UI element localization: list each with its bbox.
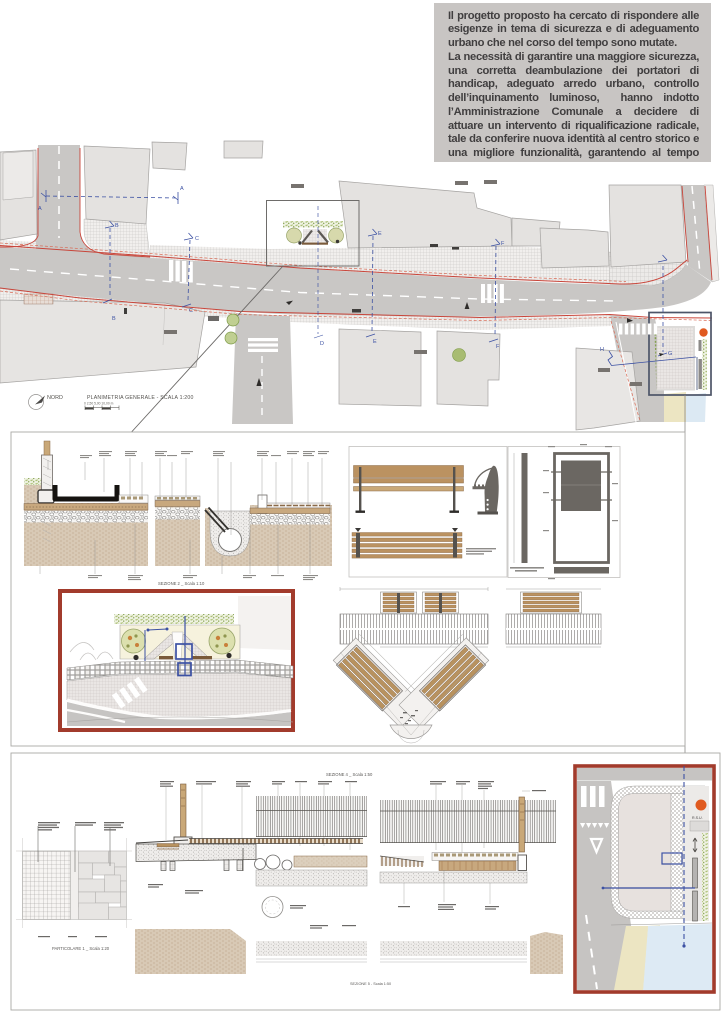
svg-text:NORD: NORD [47, 395, 63, 401]
svg-text:PLANIMETRIA GENERALE - SCALA 1: PLANIMETRIA GENERALE - SCALA 1:200 [87, 395, 194, 401]
svg-text:D: D [320, 341, 324, 347]
svg-text:A: A [38, 206, 42, 212]
svg-text:A: A [180, 186, 184, 192]
svg-text:C: C [189, 308, 193, 314]
svg-text:PARTICOLARE 1 _ Scala 1:20: PARTICOLARE 1 _ Scala 1:20 [52, 946, 110, 951]
svg-text:SEZIONE 4 _ Scala 1:50: SEZIONE 4 _ Scala 1:50 [326, 772, 373, 777]
svg-text:R.S.U.: R.S.U. [692, 816, 703, 820]
svg-text:B: B [115, 223, 119, 229]
svg-text:SEZIONE 2 _ Scala 1:10: SEZIONE 2 _ Scala 1:10 [158, 581, 205, 586]
svg-text:C: C [195, 236, 199, 242]
svg-text:E: E [373, 339, 377, 345]
svg-text:0 2,50 5,00 10,00 m: 0 2,50 5,00 10,00 m [84, 402, 114, 406]
svg-text:SEZIONE 5 - Scala 1:50: SEZIONE 5 - Scala 1:50 [350, 982, 391, 986]
svg-text:B: B [112, 316, 116, 322]
svg-text:G: G [668, 351, 672, 357]
svg-text:H: H [600, 347, 604, 353]
svg-text:E: E [378, 231, 382, 237]
